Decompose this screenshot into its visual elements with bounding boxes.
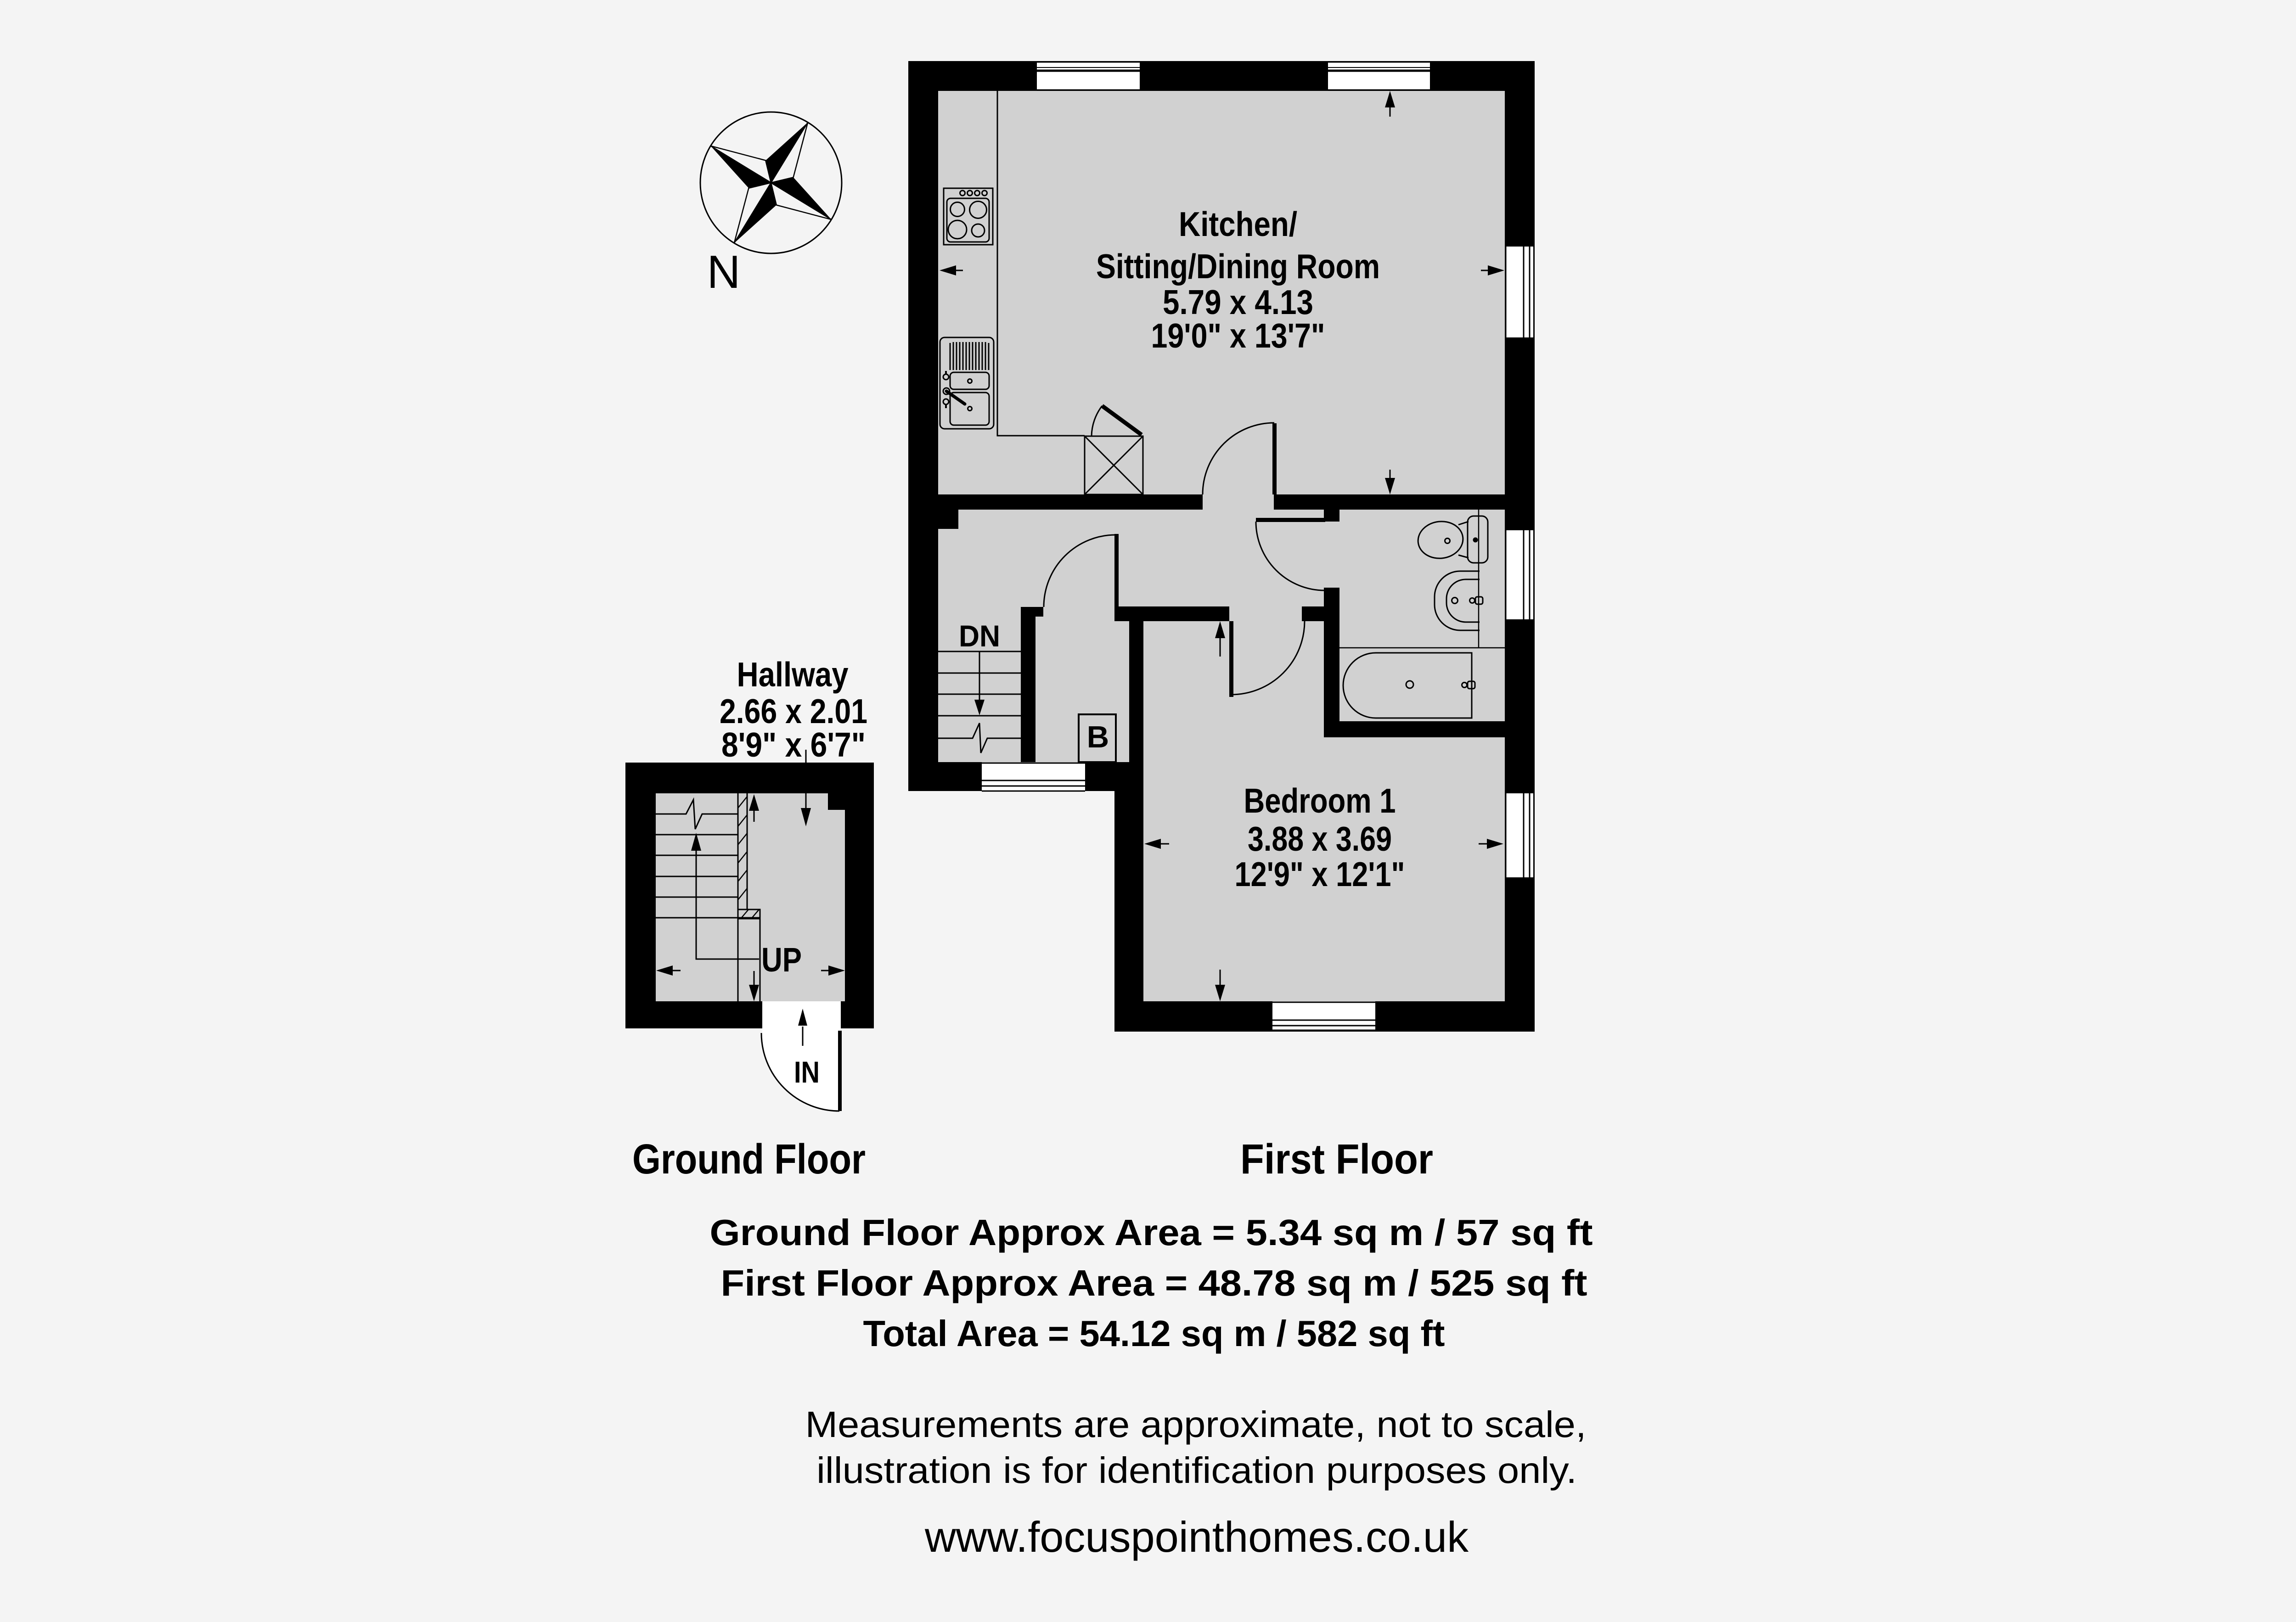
svg-text:Total Area = 54.12 sq m / 582: Total Area = 54.12 sq m / 582 sq ft	[863, 1313, 1445, 1354]
svg-text:Measurements are approximate,: Measurements are approximate, not to sca…	[805, 1404, 1587, 1445]
svg-text:3.88 x 3.69: 3.88 x 3.69	[1248, 819, 1392, 858]
svg-text:2.66 x 2.01: 2.66 x 2.01	[720, 692, 867, 730]
svg-text:Bedroom 1: Bedroom 1	[1244, 781, 1396, 820]
svg-text:N: N	[707, 247, 741, 298]
svg-text:Hallway: Hallway	[737, 655, 849, 694]
svg-text:Ground Floor: Ground Floor	[632, 1136, 866, 1183]
svg-text:UP: UP	[761, 941, 802, 979]
svg-text:IN: IN	[794, 1055, 820, 1089]
svg-text:www.focuspointhomes.co.uk: www.focuspointhomes.co.uk	[924, 1513, 1469, 1561]
svg-text:Kitchen/: Kitchen/	[1179, 205, 1297, 243]
svg-text:DN: DN	[959, 619, 1000, 653]
svg-text:illustration is for identifica: illustration is for identification purpo…	[816, 1450, 1577, 1491]
svg-text:5.79 x 4.13: 5.79 x 4.13	[1163, 283, 1313, 321]
svg-text:19'0" x 13'7": 19'0" x 13'7"	[1151, 316, 1325, 355]
svg-text:Sitting/Dining Room: Sitting/Dining Room	[1096, 247, 1380, 286]
svg-text:B: B	[1087, 720, 1109, 754]
svg-text:12'9" x 12'1": 12'9" x 12'1"	[1235, 855, 1405, 893]
svg-text:8'9" x 6'7": 8'9" x 6'7"	[721, 725, 866, 764]
svg-text:Ground Floor Approx Area = 5.3: Ground Floor Approx Area = 5.34 sq m / 5…	[710, 1212, 1593, 1253]
svg-text:First Floor Approx Area = 48.7: First Floor Approx Area = 48.78 sq m / 5…	[721, 1263, 1587, 1303]
svg-text:First Floor: First Floor	[1240, 1136, 1433, 1183]
